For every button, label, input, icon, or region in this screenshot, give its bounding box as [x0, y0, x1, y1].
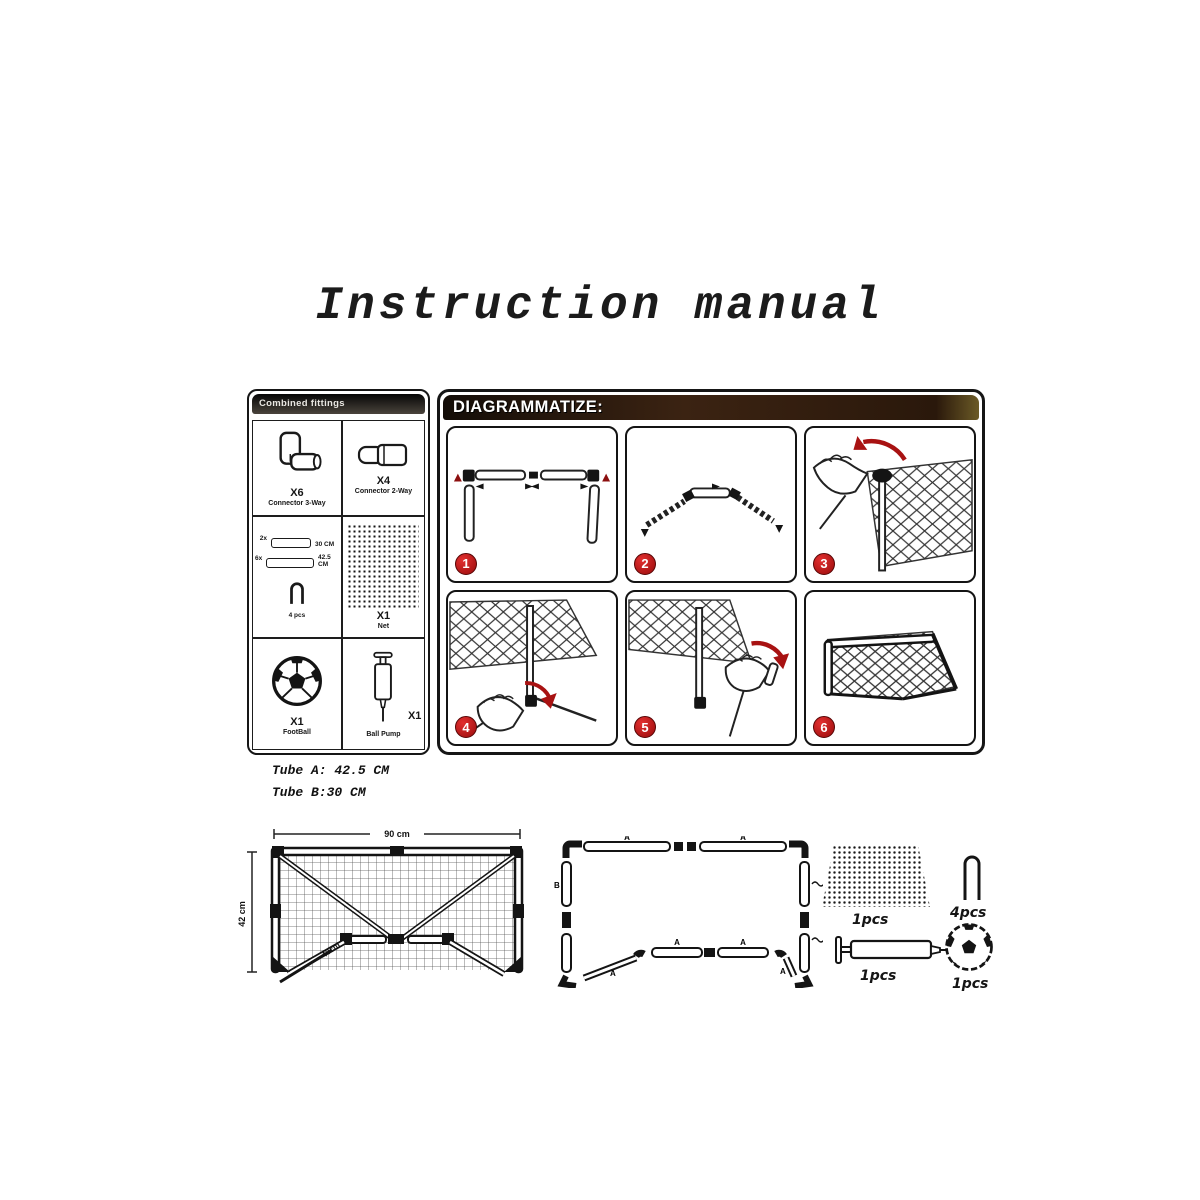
step-number: 5 [641, 720, 648, 735]
ball-pump-icon: X1 [361, 651, 405, 730]
diagram-panel-header: DIAGRAMMATIZE: [443, 395, 979, 420]
u-stake-icon [286, 577, 308, 612]
step-number-badge: 5 [634, 716, 656, 738]
tube-a-label: A [624, 836, 630, 842]
step-number-badge: 6 [813, 716, 835, 738]
stake-qty-label: 4 pcs [289, 612, 306, 619]
parts-panel: Combined fittings X6 Connector 3-Way [247, 389, 430, 755]
part-label: Net [378, 623, 389, 630]
tube-short-icon [271, 538, 311, 548]
part-cell-net: X1 Net [342, 516, 425, 638]
step-2-box: 2 [625, 426, 797, 583]
step-6-box: 6 [804, 590, 976, 747]
qty-label: X1 [290, 716, 303, 728]
straight-connector-icon [357, 442, 409, 473]
qty-label: X4 [377, 475, 390, 487]
part-label: Connector 2-Way [355, 488, 412, 495]
parts-grid: X6 Connector 3-Way X4 Connector 2-Way 2x… [252, 420, 425, 750]
part-label: Ball Pump [366, 731, 400, 738]
net-item-icon [822, 845, 930, 907]
tube-short-row: 2x 30 CM [260, 538, 334, 548]
step-number-badge: 1 [455, 553, 477, 575]
step-number-badge: 2 [634, 553, 656, 575]
goal-front-view-diagram: 90 cm 42 cm 40cm [232, 822, 542, 994]
tube-a-label: A [610, 969, 616, 978]
step-number-badge: 3 [813, 553, 835, 575]
tube-b-note: Tube B:30 CM [272, 782, 389, 804]
qty-label: X1 [408, 710, 421, 722]
tube-a-note: Tube A: 42.5 CM [272, 760, 389, 782]
football-icon [269, 653, 325, 714]
tube-count-label: 2x [260, 535, 267, 542]
tube-a-label: A [674, 938, 680, 947]
step-4-box: 4 [446, 590, 618, 747]
part-label: FootBall [283, 729, 311, 736]
step-number: 4 [462, 720, 469, 735]
step-3-box: 3 [804, 426, 976, 583]
frame-exploded-diagram: A A B A A A A [548, 836, 823, 988]
step-number: 3 [820, 556, 827, 571]
front-height-label: 42 cm [237, 901, 247, 927]
stake-item-icon [958, 848, 986, 902]
qty-label: X1 [377, 610, 390, 622]
step-1-box: 1 [446, 426, 618, 583]
page-title: Instruction manual [0, 280, 1200, 332]
part-label: Connector 3-Way [268, 500, 325, 507]
part-cell-connector-2way: X4 Connector 2-Way [342, 420, 425, 516]
tube-a-label: A [740, 836, 746, 842]
tube-count-label: 6x [255, 555, 262, 562]
tube-length-label: 42.5 CM [318, 554, 339, 568]
part-cell-tubes: 2x 30 CM 6x 42.5 CM 4 pcs [252, 516, 342, 638]
elbow-connector-icon [268, 430, 326, 485]
net-swatch-icon [347, 524, 419, 608]
step-number: 6 [820, 720, 827, 735]
step-number: 2 [641, 556, 648, 571]
front-width-label: 90 cm [384, 829, 410, 839]
tube-a-label: A [780, 967, 786, 976]
tube-b-label: B [554, 881, 560, 890]
ball-item-icon [942, 920, 996, 974]
stake-qty-label: 4pcs [950, 905, 986, 921]
part-cell-pump: X1 Ball Pump [342, 638, 425, 750]
part-cell-football: X1 FootBall [252, 638, 342, 750]
net-qty-label: 1pcs [852, 912, 888, 928]
tube-notes: Tube A: 42.5 CM Tube B:30 CM [272, 760, 389, 804]
diagram-panel: DIAGRAMMATIZE: 1 [437, 389, 985, 755]
step-number-badge: 4 [455, 716, 477, 738]
qty-label: X6 [290, 487, 303, 499]
step-number: 1 [462, 556, 469, 571]
pump-qty-label: 1pcs [860, 968, 896, 984]
tube-length-label: 30 CM [315, 541, 334, 548]
ball-qty-label: 1pcs [952, 976, 988, 992]
part-cell-connector-3way: X6 Connector 3-Way [252, 420, 342, 516]
tube-a-label: A [740, 938, 746, 947]
steps-grid: 1 2 [446, 426, 976, 746]
tube-long-icon [266, 558, 314, 568]
tube-long-row: 6x 42.5 CM [255, 554, 339, 568]
step-5-box: 5 [625, 590, 797, 747]
parts-panel-header: Combined fittings [252, 394, 425, 414]
